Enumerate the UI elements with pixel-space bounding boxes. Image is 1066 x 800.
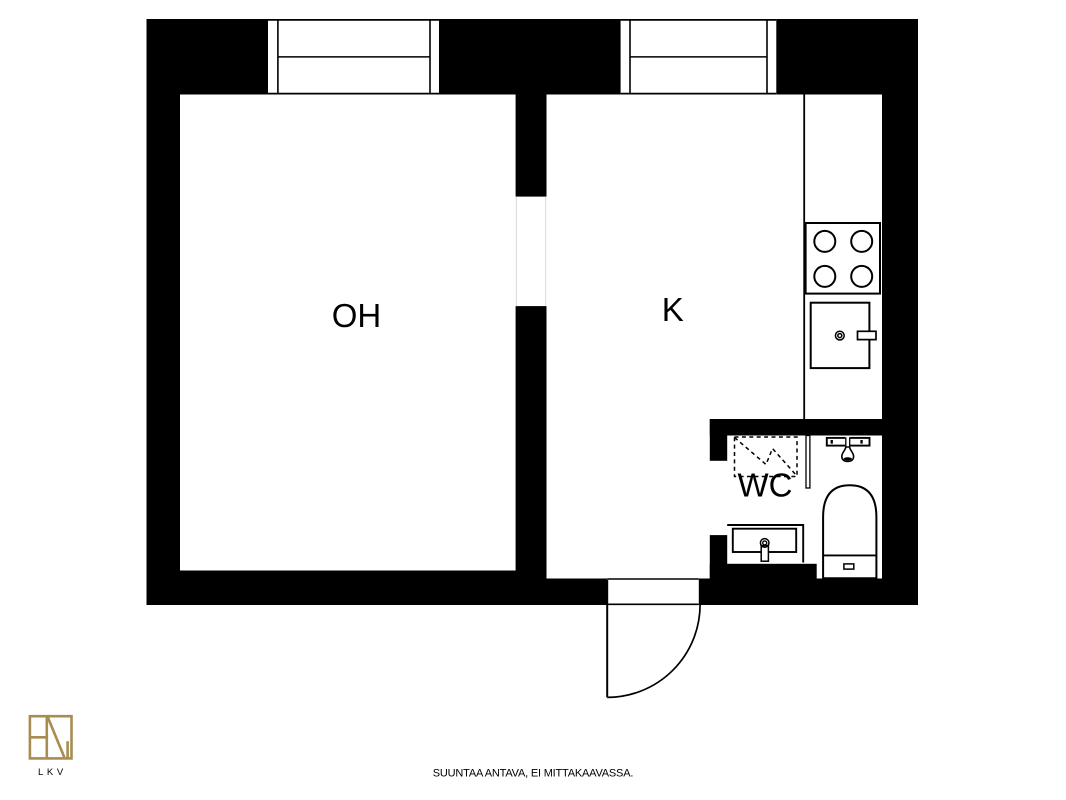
- svg-text:SUUNTAA ANTAVA, EI MITTAKAAVAS: SUUNTAA ANTAVA, EI MITTAKAAVASSA.: [433, 768, 634, 780]
- svg-text:K: K: [662, 291, 684, 328]
- svg-text:WC: WC: [738, 467, 793, 504]
- svg-text:OH: OH: [332, 297, 382, 334]
- svg-text:LKV: LKV: [38, 767, 67, 778]
